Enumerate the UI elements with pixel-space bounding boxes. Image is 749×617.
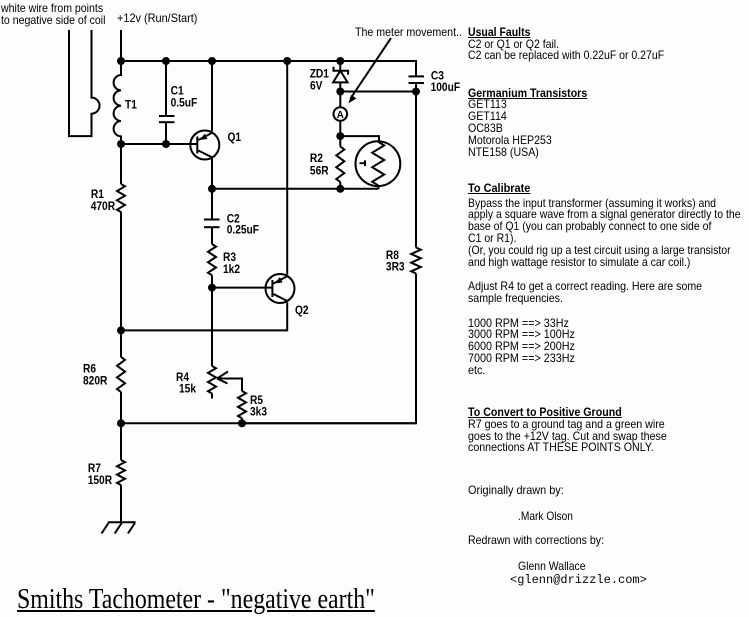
svg-text:56R: 56R (310, 165, 329, 178)
svg-text:3k3: 3k3 (250, 406, 267, 419)
svg-text:ZD1: ZD1 (310, 68, 329, 81)
svg-text:Q2: Q2 (295, 304, 309, 317)
svg-text:0.5uF: 0.5uF (171, 97, 198, 110)
svg-text:1k2: 1k2 (223, 263, 240, 276)
svg-text:C1: C1 (171, 85, 184, 98)
svg-text:R2: R2 (310, 153, 323, 166)
svg-text:15k: 15k (179, 383, 197, 396)
svg-text:470R: 470R (91, 200, 115, 213)
svg-text:150R: 150R (88, 474, 112, 487)
svg-text:T1: T1 (125, 99, 137, 112)
svg-text:820R: 820R (83, 375, 107, 388)
svg-text:Q1: Q1 (228, 131, 242, 144)
svg-text:A: A (337, 110, 344, 121)
svg-text:6V: 6V (310, 80, 323, 93)
svg-text:0.25uF: 0.25uF (227, 224, 259, 237)
svg-text:100uF: 100uF (431, 81, 461, 94)
svg-text:3R3: 3R3 (386, 261, 405, 274)
